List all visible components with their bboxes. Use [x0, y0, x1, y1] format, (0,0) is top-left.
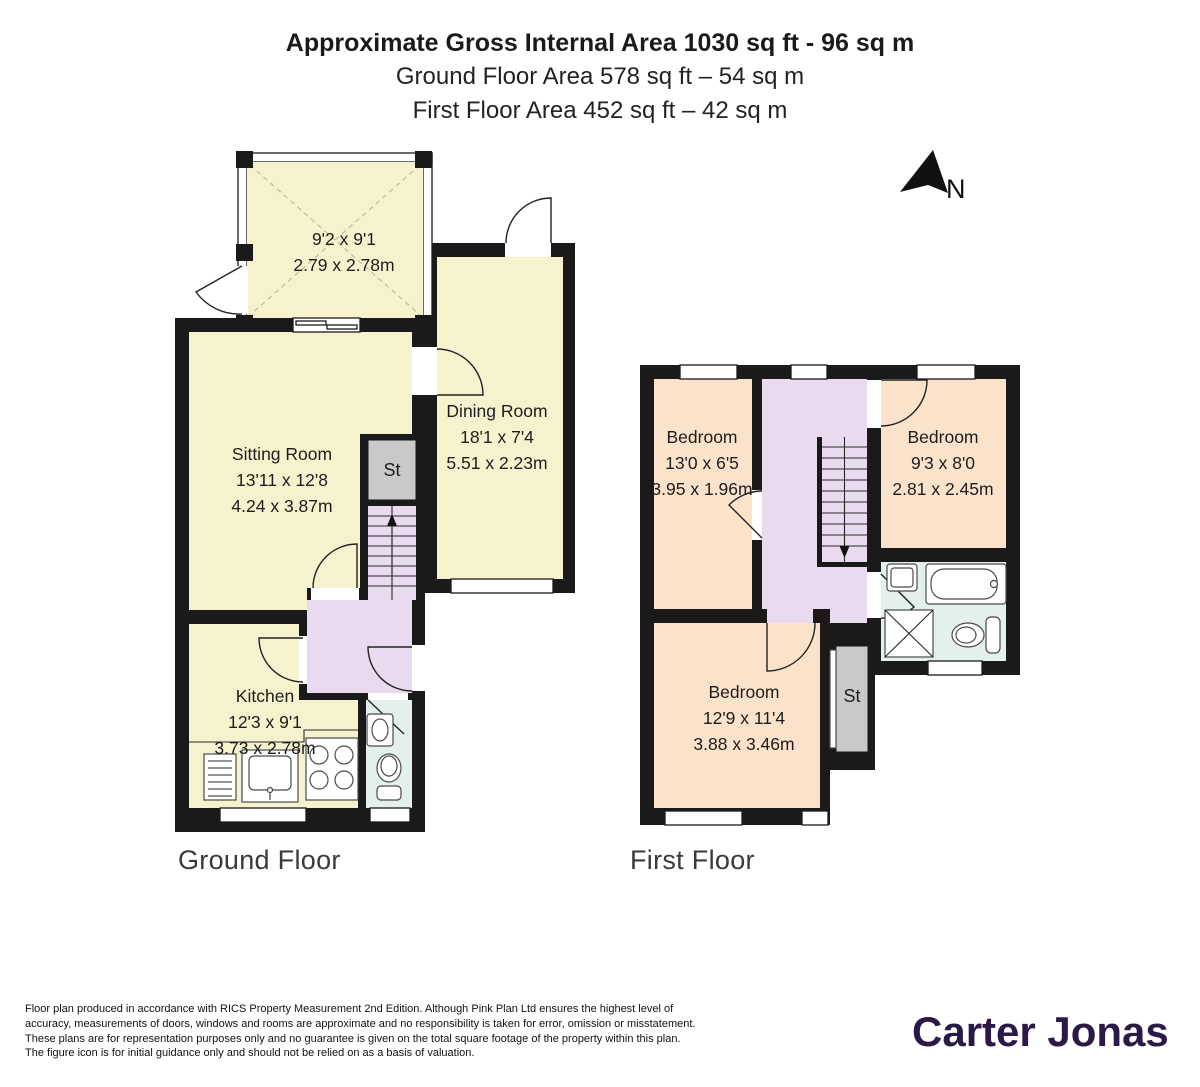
- store-first-label: St: [843, 683, 860, 709]
- kitchen-window: [220, 808, 306, 822]
- dining-entry-door: [506, 198, 551, 243]
- bedroom-right-window: [917, 365, 975, 379]
- first-floor-area: First Floor Area 452 sq ft – 42 sq m: [0, 94, 1200, 128]
- store-ground-label: St: [383, 457, 400, 483]
- store-door: [830, 650, 836, 748]
- bathroom-window: [928, 661, 982, 675]
- carter-jonas-logo: Carter Jonas: [912, 1008, 1169, 1056]
- dining-window: [451, 579, 553, 593]
- landing: [762, 379, 867, 623]
- gross-area-title: Approximate Gross Internal Area 1030 sq …: [0, 26, 1200, 60]
- north-label: N: [946, 174, 966, 205]
- bedroom-left-window: [680, 365, 737, 379]
- north-indicator: N: [898, 148, 988, 223]
- ground-floor-area: Ground Floor Area 578 sq ft – 54 sq m: [0, 60, 1200, 94]
- landing-window: [791, 365, 827, 379]
- bedroom-bottom-label: Bedroom 12'9 x 11'4 3.88 x 3.46m: [693, 679, 794, 757]
- bedroom-left-label: Bedroom 13'0 x 6'5 3.95 x 1.96m: [651, 424, 752, 502]
- bedroom-bottom-window: [665, 811, 742, 825]
- sitting-room-label: Sitting Room 13'11 x 12'8 4.24 x 3.87m: [231, 441, 332, 519]
- wc-window: [370, 808, 410, 822]
- header: Approximate Gross Internal Area 1030 sq …: [0, 26, 1200, 128]
- bedroom-right-label: Bedroom 9'3 x 8'0 2.81 x 2.45m: [892, 424, 993, 502]
- first-floor-caption: First Floor: [630, 845, 755, 876]
- conservatory-label: 9'2 x 9'1 2.79 x 2.78m: [293, 226, 394, 278]
- dining-room-label: Dining Room 18'1 x 7'4 5.51 x 2.23m: [446, 398, 547, 476]
- disclaimer-text: Floor plan produced in accordance with R…: [25, 1002, 697, 1061]
- bedroom-bottom-window-2: [802, 811, 828, 825]
- ground-floor-caption: Ground Floor: [178, 845, 341, 876]
- kitchen-label: Kitchen 12'3 x 9'1 3.73 x 2.78m: [214, 683, 315, 761]
